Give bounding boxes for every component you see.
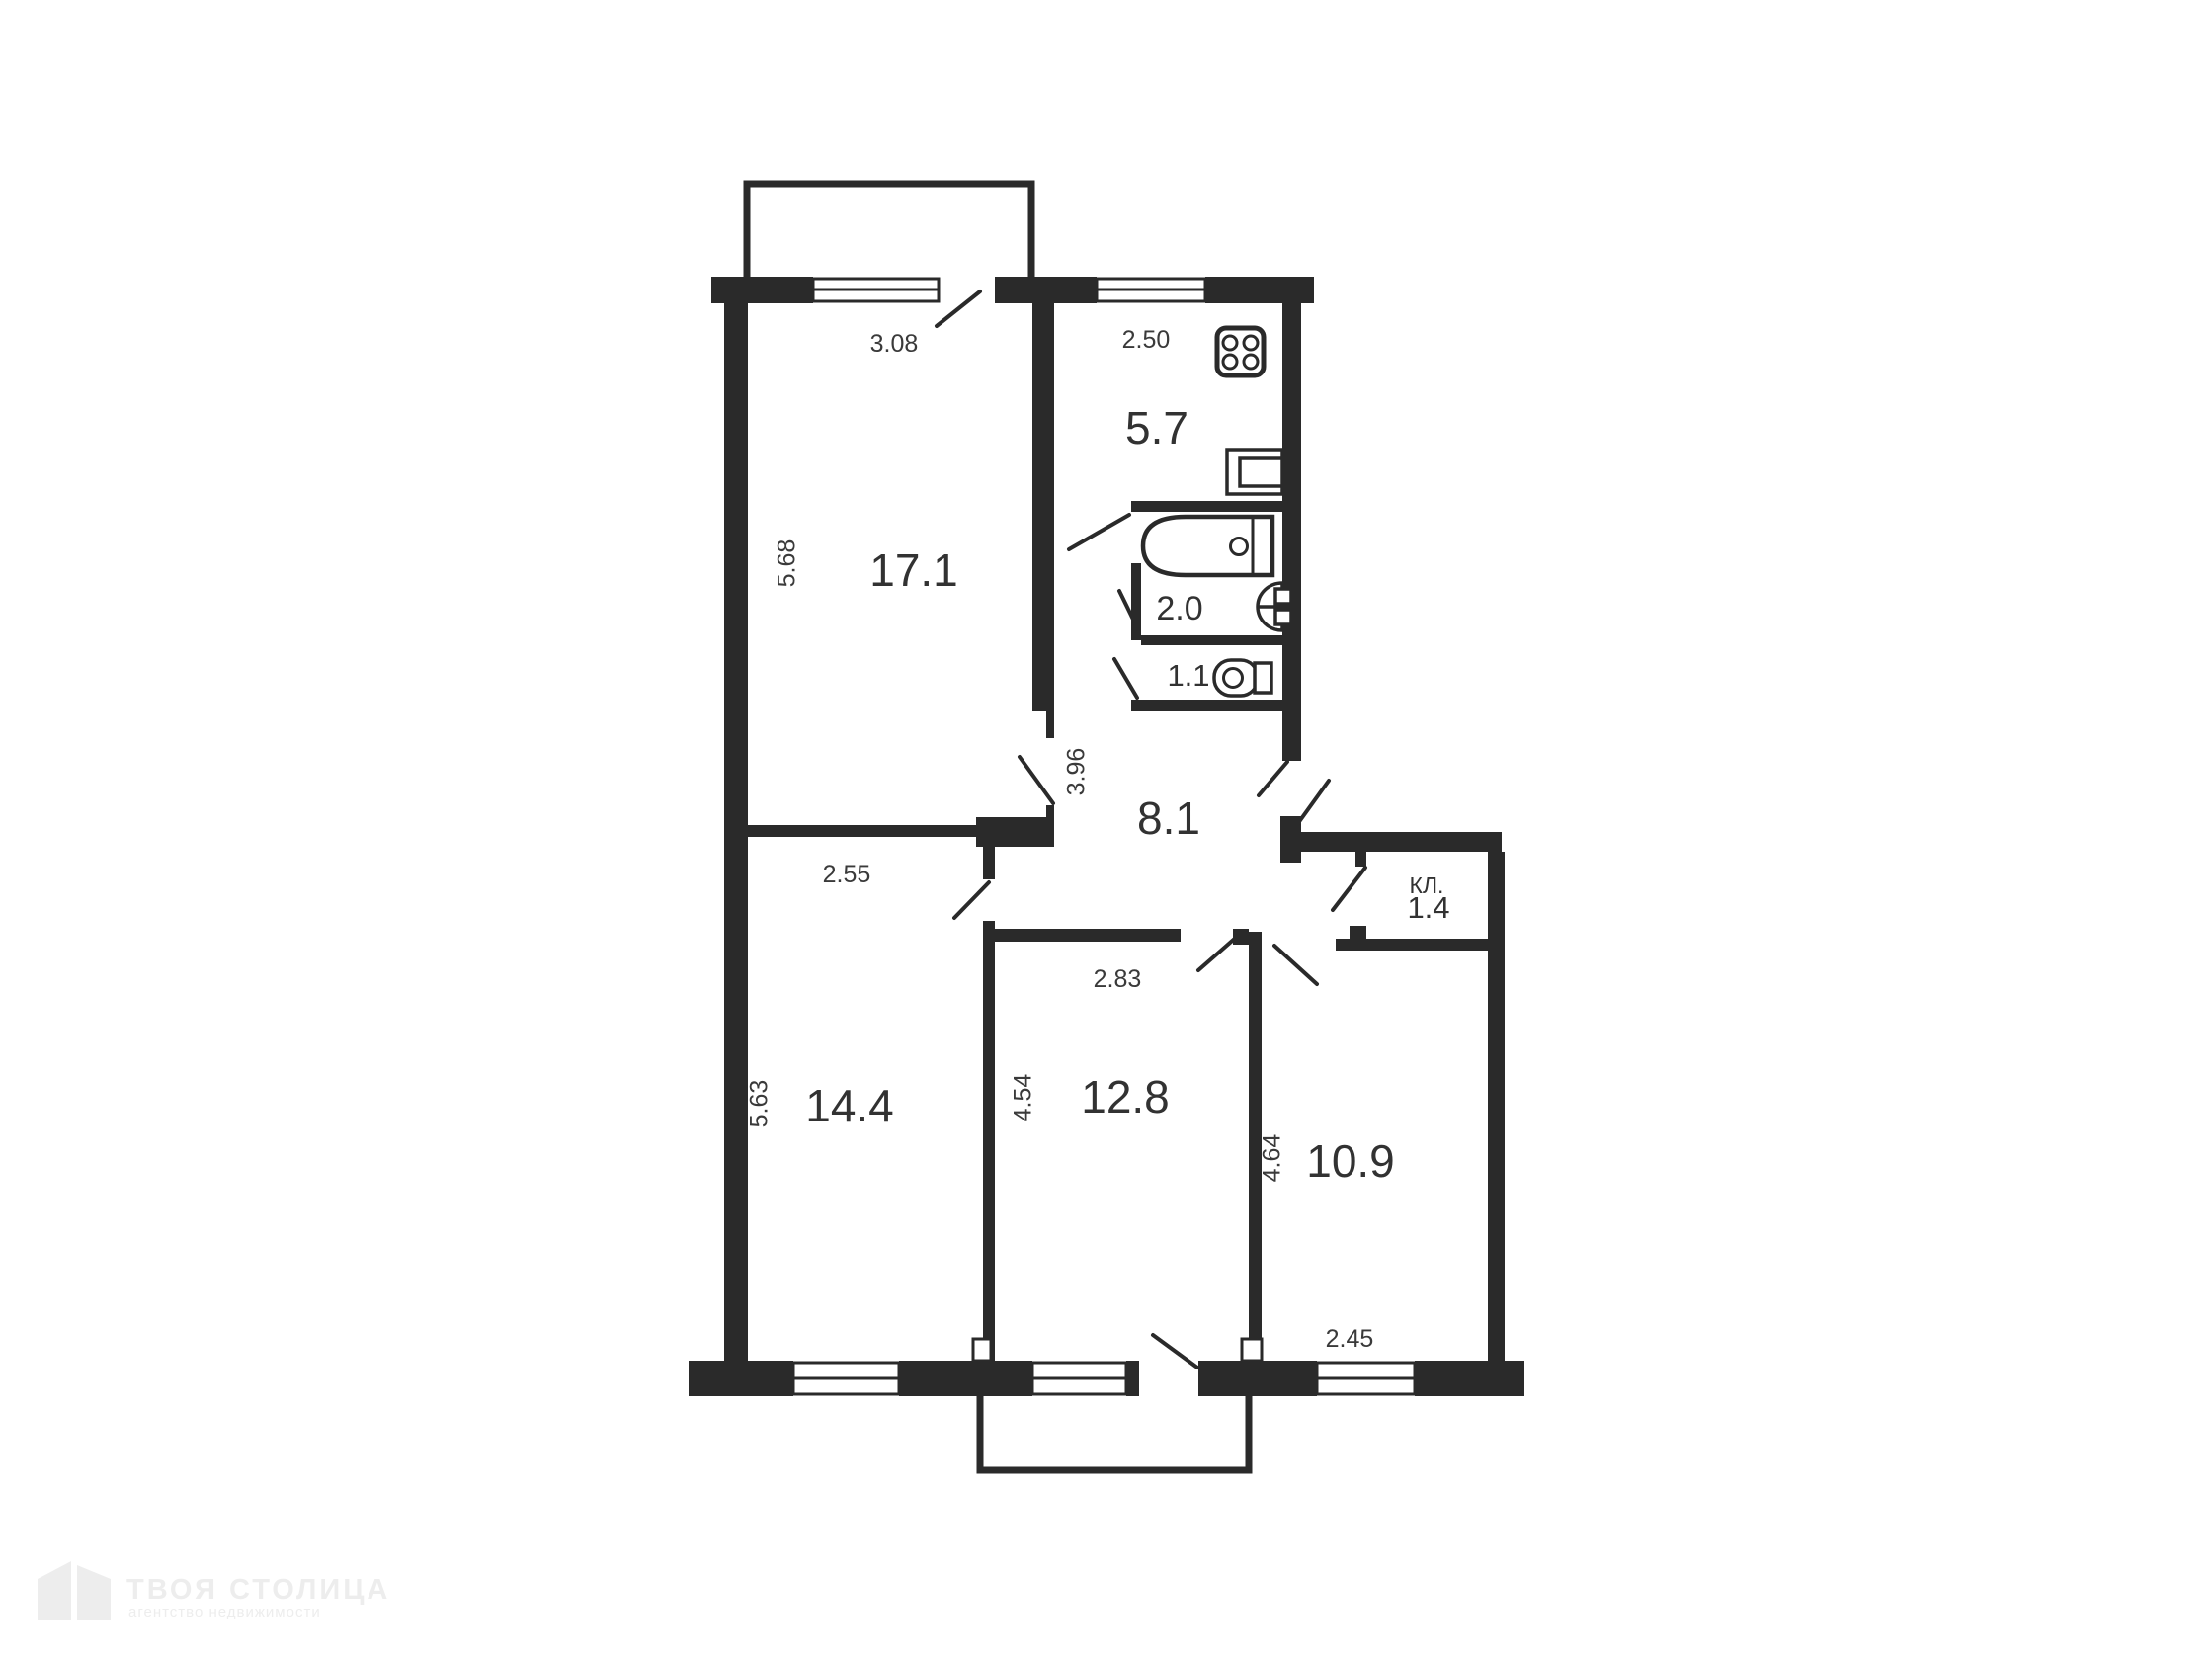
- wall-segment: [1205, 277, 1314, 303]
- dim-living-height: 5.68: [774, 539, 801, 588]
- wall-segment: [1046, 805, 1054, 817]
- wall-segment: [689, 1361, 793, 1396]
- wall-segment: [748, 825, 976, 837]
- window-bedroom-right: [1317, 1363, 1415, 1394]
- wall-segment: [1141, 635, 1282, 645]
- door-leaf-entry-b: [1298, 781, 1329, 823]
- dim-hall-height: 3.96: [1063, 748, 1091, 796]
- dim-bedroom-middle-height: 4.54: [1010, 1074, 1037, 1122]
- room-label-bath: 2.0: [1156, 590, 1202, 627]
- window-bedroom-middle: [1032, 1363, 1126, 1394]
- wall-segment: [1415, 1361, 1524, 1396]
- toilet-icon: [1214, 660, 1271, 696]
- watermark-title: ТВОЯ СТОЛИЦА: [126, 1574, 390, 1606]
- door-leaf-wc: [1114, 659, 1137, 698]
- watermark-subtitle: агентство недвижимости: [128, 1604, 321, 1620]
- room-label-bedroom-left: 14.4: [805, 1080, 894, 1131]
- stove-icon: [1217, 328, 1264, 375]
- room-label-living: 17.1: [869, 544, 958, 596]
- door-leaf-bottom-balcony: [1153, 1335, 1197, 1368]
- window-living: [813, 279, 939, 301]
- room-label-kitchen: 5.7: [1125, 402, 1188, 454]
- room-label-closet: 1.4: [1407, 890, 1449, 925]
- wall-segment: [983, 847, 995, 879]
- wall-segment: [1282, 303, 1301, 761]
- dim-bedroom-left-height: 5.63: [746, 1080, 774, 1128]
- wall-stub: [973, 1339, 991, 1361]
- wall-segment: [1032, 303, 1054, 711]
- kitchen-sink-icon: [1227, 450, 1282, 494]
- wall-segment: [1131, 501, 1282, 512]
- agency-logo-icon: [38, 1561, 111, 1620]
- wall-segment: [995, 277, 1097, 303]
- door-leaf-closet: [1333, 868, 1365, 910]
- wall-segment: [1488, 852, 1505, 1361]
- floor-plan-page: 3.08 5.68 17.1 2.50 5.7 2.0 1.1 3.96 8.1…: [0, 0, 2212, 1660]
- room-label-wc: 1.1: [1167, 658, 1209, 693]
- bathtub-icon: [1143, 517, 1272, 575]
- floor-plan: 3.08 5.68 17.1 2.50 5.7 2.0 1.1 3.96 8.1…: [0, 0, 2212, 1660]
- dim-bedroom-right-width: 2.45: [1326, 1325, 1374, 1353]
- wall-segment: [976, 817, 1054, 847]
- wall-segment: [1297, 832, 1502, 852]
- wall-stubs: [973, 1339, 1262, 1361]
- door-leaf-kitchen: [1069, 515, 1129, 549]
- dim-kitchen-width: 2.50: [1122, 326, 1171, 354]
- window-bedroom-left: [793, 1363, 899, 1394]
- wall-segment: [1198, 1361, 1317, 1396]
- wall-segment: [995, 929, 1181, 942]
- dim-bedroom-middle-width: 2.83: [1094, 965, 1142, 993]
- dim-living-width: 3.08: [870, 330, 919, 358]
- balcony-bottom-outline: [980, 1396, 1249, 1470]
- wall-segment: [1126, 1361, 1139, 1396]
- wall-segment: [983, 921, 995, 1361]
- door-leaf-bedroom-right: [1274, 946, 1317, 984]
- walls: [689, 277, 1524, 1396]
- wall-segment: [724, 303, 748, 1361]
- door-leaf-bedroom-left: [954, 882, 989, 918]
- room-label-hall: 8.1: [1137, 792, 1200, 844]
- dim-bedroom-left-width: 2.55: [823, 861, 871, 888]
- wall-segment: [1355, 852, 1366, 867]
- dim-bedroom-right-height: 4.64: [1259, 1134, 1286, 1183]
- door-leaf-living: [1020, 757, 1053, 803]
- room-label-bedroom-middle: 12.8: [1081, 1071, 1170, 1122]
- watermark: ТВОЯ СТОЛИЦА агентство недвижимости: [38, 1561, 390, 1620]
- wall-stub: [1242, 1339, 1262, 1361]
- window-kitchen: [1097, 279, 1205, 301]
- door-leaf-bedroom-middle: [1198, 936, 1238, 970]
- wall-segment: [1046, 711, 1054, 738]
- room-label-bedroom-right: 10.9: [1306, 1135, 1395, 1187]
- door-leaf-entry-a: [1259, 762, 1287, 795]
- wall-segment: [1131, 700, 1282, 711]
- wall-segment: [899, 1361, 1032, 1396]
- balcony-top-outline: [747, 184, 1031, 277]
- door-leaf-living-balcony: [937, 291, 980, 326]
- wall-segment: [711, 277, 813, 303]
- wall-segment: [1355, 926, 1366, 951]
